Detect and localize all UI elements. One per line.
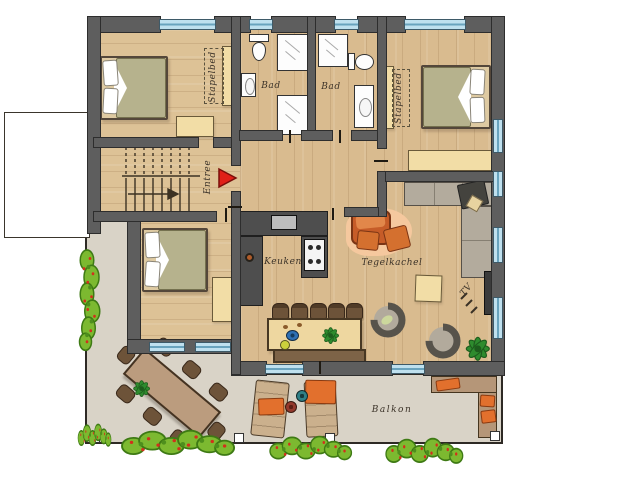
plant-icon [466, 337, 489, 360]
flower-box-icon [80, 250, 100, 350]
entrance-arrow-icon [219, 169, 236, 187]
flower-box-icon [270, 437, 351, 460]
label-tile-stove: Tegelkachel [352, 258, 432, 269]
plant-icon [134, 381, 150, 397]
label-balcony: Balkon [362, 405, 422, 416]
decor-overlay [0, 0, 640, 480]
label-kitchen: Keuken [258, 257, 308, 268]
label-bath-left: Bad [251, 81, 291, 92]
label-bath-right: Bad [311, 82, 351, 93]
label-bunk-right: Stapelbed [394, 70, 406, 126]
label-entrance: Entree [203, 153, 215, 201]
flower-box-icon [78, 424, 111, 446]
armchair-icon [429, 327, 457, 355]
flower-box-icon [386, 439, 463, 463]
floor-plan: Stapelbed Stapelbed Bad Bad Entree Keuke… [0, 0, 640, 480]
plant-icon [323, 328, 339, 344]
flower-box-icon [122, 431, 234, 455]
armchair-icon [374, 306, 402, 334]
label-bunk-left: Stapelbed [208, 49, 220, 105]
